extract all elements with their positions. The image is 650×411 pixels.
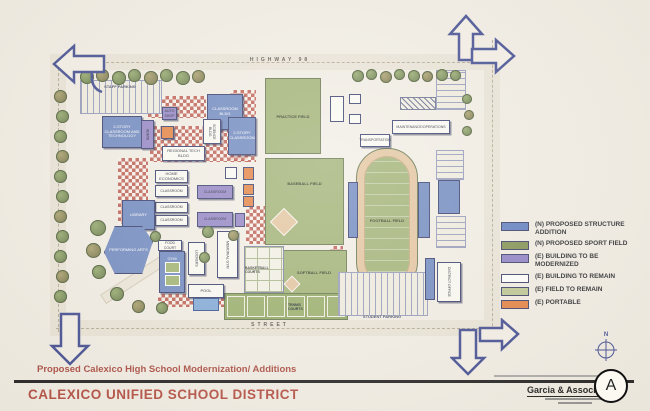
- building-pool-house: POOL: [188, 284, 224, 298]
- building-classroom: CLASSROOM: [155, 202, 188, 213]
- basketball-courts-label: BASKETBALL COURTS: [245, 266, 283, 274]
- building-label: HOME ECONOMICS: [156, 172, 187, 181]
- building-label: MEMORIAL GYM: [226, 241, 230, 268]
- street-label-bottom: STREET: [215, 322, 325, 328]
- building-label: CLASSROOM: [204, 190, 226, 194]
- building-classroom: CLASSROOM: [155, 215, 188, 226]
- tree-icon: [394, 69, 405, 80]
- tree-icon: [112, 71, 126, 85]
- building-label: 2-STORY CLASSROOM: [229, 131, 255, 140]
- tennis-court: [227, 296, 245, 317]
- road-arrow-bottom-right: [450, 318, 524, 376]
- tree-icon: [380, 71, 392, 83]
- legend-item: (E) BUILDING TO REMAIN: [501, 273, 647, 283]
- legend-swatch: [501, 241, 529, 250]
- bleachers-west: [348, 182, 358, 238]
- building-label: 2-STORY CLASSROOM AND TECHNOLOGY: [103, 125, 141, 139]
- tree-icon: [128, 69, 141, 82]
- road-arrow-top-left: [40, 36, 112, 96]
- road-centerline: [56, 328, 480, 329]
- building-food-court: FOOD COURT: [158, 240, 182, 251]
- plan-sheet: HIGHWAY 98 STREET PRACTICE FIELD BASEBAL…: [0, 0, 650, 411]
- tree-icon: [462, 126, 472, 136]
- legend-item: (N) PROPOSED STRUCTURE ADDITION: [501, 221, 647, 237]
- building-maintenance: MAINTENANCE/OPERATIONS: [392, 120, 450, 134]
- legend-item: (E) PORTABLE: [501, 299, 647, 309]
- building-label: GYM: [167, 257, 176, 262]
- legend-swatch: [501, 300, 529, 309]
- tree-icon: [54, 250, 67, 263]
- building-small: [225, 167, 237, 179]
- gym-court: [165, 275, 180, 286]
- building-portable: [161, 126, 174, 139]
- building-gym: GYM: [159, 251, 185, 293]
- tree-icon: [86, 243, 101, 258]
- running-track: FOOTBALL FIELD: [356, 148, 418, 292]
- building-auto-shop: AUTO SHOP: [162, 107, 177, 120]
- tree-icon: [56, 230, 69, 243]
- shade-structure: [400, 97, 436, 110]
- building-label: FOOD COURT: [159, 241, 181, 249]
- tree-icon: [464, 110, 474, 120]
- tree-icon: [199, 252, 210, 263]
- legend-item: (E) BUILDING TO BE MODERNIZED: [501, 253, 647, 269]
- building-science: SCIENCE BLDG: [203, 119, 221, 144]
- legend-label: (E) BUILDING TO BE MODERNIZED: [535, 253, 639, 269]
- legend-label: (E) FIELD TO REMAIN: [535, 286, 639, 294]
- building-label: CLASSROOM: [204, 217, 226, 221]
- sheet-letter: A: [606, 377, 617, 395]
- tree-icon: [56, 270, 69, 283]
- basketball-courts: BASKETBALL COURTS: [244, 246, 284, 293]
- building-pe-addition: [438, 180, 460, 214]
- baseball-field-label: BASEBALL FIELD: [287, 181, 321, 186]
- legend-label: (E) PORTABLE: [535, 299, 639, 307]
- tree-icon: [156, 302, 168, 314]
- tennis-court: [267, 296, 285, 317]
- project-title: Proposed Calexico High School Modernizat…: [37, 364, 296, 375]
- baseball-field: BASEBALL FIELD: [265, 158, 344, 245]
- building-portable: [243, 184, 254, 195]
- tennis-court: [247, 296, 265, 317]
- tree-icon: [192, 70, 205, 83]
- legend-swatch: [501, 274, 529, 283]
- legend-label: (N) PROPOSED SPORT FIELD: [535, 240, 639, 248]
- building-label: MAINTENANCE/OPERATIONS: [396, 125, 445, 129]
- tennis-courts-label: TENNIS COURTS: [288, 303, 304, 311]
- football-field-label: FOOTBALL FIELD: [370, 218, 404, 223]
- building-label: ADMIN: [146, 129, 150, 140]
- building-classroom-modernized: CLASSROOM: [197, 185, 233, 199]
- tree-icon: [160, 69, 173, 82]
- tree-icon: [228, 230, 239, 241]
- road-arrow-bottom-left: [44, 308, 96, 368]
- tennis-court: TENNIS COURTS: [287, 296, 305, 317]
- practice-field-label: PRACTICE FIELD: [276, 114, 309, 119]
- building-small: [349, 94, 361, 104]
- building-label: AUTO SHOP: [163, 109, 176, 117]
- swimming-pool: [193, 298, 219, 311]
- tennis-courts: TENNIS COURTS: [224, 293, 348, 320]
- gym-court: [165, 262, 180, 273]
- building-admin: ADMIN: [141, 120, 154, 149]
- building-library: LIBRARY: [122, 200, 155, 230]
- building-label: SCIENCE BLDG: [208, 120, 216, 143]
- building-classroom: CLASSROOM: [155, 185, 188, 197]
- building-label: LIBRARY: [130, 213, 147, 218]
- tree-icon: [54, 130, 67, 143]
- legend-swatch: [501, 287, 529, 296]
- district-name: CALEXICO UNIFIED SCHOOL DISTRICT: [28, 387, 299, 402]
- building-label: DISTRICT OFFICE: [447, 267, 451, 297]
- tree-icon: [352, 70, 364, 82]
- building-two-story-classroom: 2-STORY CLASSROOM: [228, 117, 256, 155]
- tree-icon: [144, 71, 158, 85]
- tree-icon: [56, 190, 69, 203]
- tennis-court: [307, 296, 325, 317]
- tree-icon: [54, 290, 67, 303]
- tree-icon: [202, 226, 214, 238]
- tree-icon: [110, 287, 124, 301]
- building-district-office: DISTRICT OFFICE: [437, 262, 461, 302]
- building-label: CLASSROOM BLDG: [208, 107, 242, 116]
- building-home-economics: HOME ECONOMICS: [155, 170, 188, 183]
- property-line: [492, 40, 493, 336]
- building-label: LOCKERS: [195, 250, 199, 267]
- building-label: CLASSROOM: [160, 218, 182, 222]
- legend: (N) PROPOSED STRUCTURE ADDITION (N) PROP…: [501, 221, 647, 312]
- tree-icon: [92, 265, 106, 279]
- bleachers-south: [425, 258, 435, 300]
- softball-field-label: SOFTBALL FIELD: [297, 270, 331, 275]
- north-arrow: N: [593, 332, 619, 367]
- firm-subtitle-line: [545, 398, 605, 400]
- north-symbol-icon: [594, 338, 618, 362]
- legend-item: (E) FIELD TO REMAIN: [501, 286, 647, 296]
- building-regional-tech: REGIONAL TECH BLDG: [162, 146, 205, 161]
- east-parking: [436, 216, 466, 248]
- east-parking: [436, 150, 464, 180]
- practice-field: PRACTICE FIELD: [265, 78, 321, 154]
- building-portable: [243, 196, 254, 207]
- tree-icon: [54, 210, 67, 223]
- tree-icon: [90, 220, 106, 236]
- tree-icon: [408, 70, 420, 82]
- tree-icon: [176, 71, 190, 85]
- tree-icon: [422, 71, 433, 82]
- building-label: TRANSPORTATION: [359, 138, 391, 142]
- student-parking-label: STUDENT PARKING: [338, 314, 426, 319]
- street-label-top: HIGHWAY 98: [200, 57, 360, 63]
- building-label: POOL: [200, 289, 211, 294]
- legend-label: (E) BUILDING TO REMAIN: [535, 273, 639, 281]
- baseball-diamond: [270, 208, 298, 236]
- building-label: REGIONAL TECH BLDG: [163, 149, 204, 158]
- tree-icon: [462, 94, 472, 104]
- legend-item: (N) PROPOSED SPORT FIELD: [501, 240, 647, 250]
- football-field: FOOTBALL FIELD: [364, 156, 410, 284]
- road-arrow-top-right: [442, 12, 520, 78]
- student-parking: [338, 272, 428, 316]
- tree-icon: [56, 110, 69, 123]
- tree-icon: [150, 231, 161, 242]
- title-rule: [14, 380, 634, 383]
- bleachers-east: [418, 182, 430, 238]
- building-transportation: TRANSPORTATION: [360, 134, 390, 147]
- building-label: CLASSROOM: [160, 189, 182, 193]
- sheet-letter-badge: A: [594, 369, 628, 403]
- softball-diamond: [284, 276, 301, 293]
- building-small-modernized: [235, 213, 245, 227]
- tree-icon: [56, 150, 69, 163]
- building-label: PERFORMING ARTS: [109, 248, 148, 253]
- firm-subtitle-line: [558, 402, 592, 404]
- legend-label: (N) PROPOSED STRUCTURE ADDITION: [535, 221, 639, 237]
- building-field-house: [330, 96, 344, 122]
- legend-swatch: [501, 254, 529, 263]
- building-classroom-modernized: CLASSROOM: [197, 212, 233, 227]
- plot-stamp: [494, 375, 598, 377]
- building-portable: [243, 167, 254, 180]
- building-small: [349, 114, 361, 124]
- tree-icon: [54, 170, 67, 183]
- legend-swatch: [501, 222, 529, 231]
- tree-icon: [366, 69, 377, 80]
- building-label: CLASSROOM: [160, 205, 182, 209]
- tree-icon: [132, 300, 145, 313]
- building-classroom-technology: 2-STORY CLASSROOM AND TECHNOLOGY: [102, 116, 142, 148]
